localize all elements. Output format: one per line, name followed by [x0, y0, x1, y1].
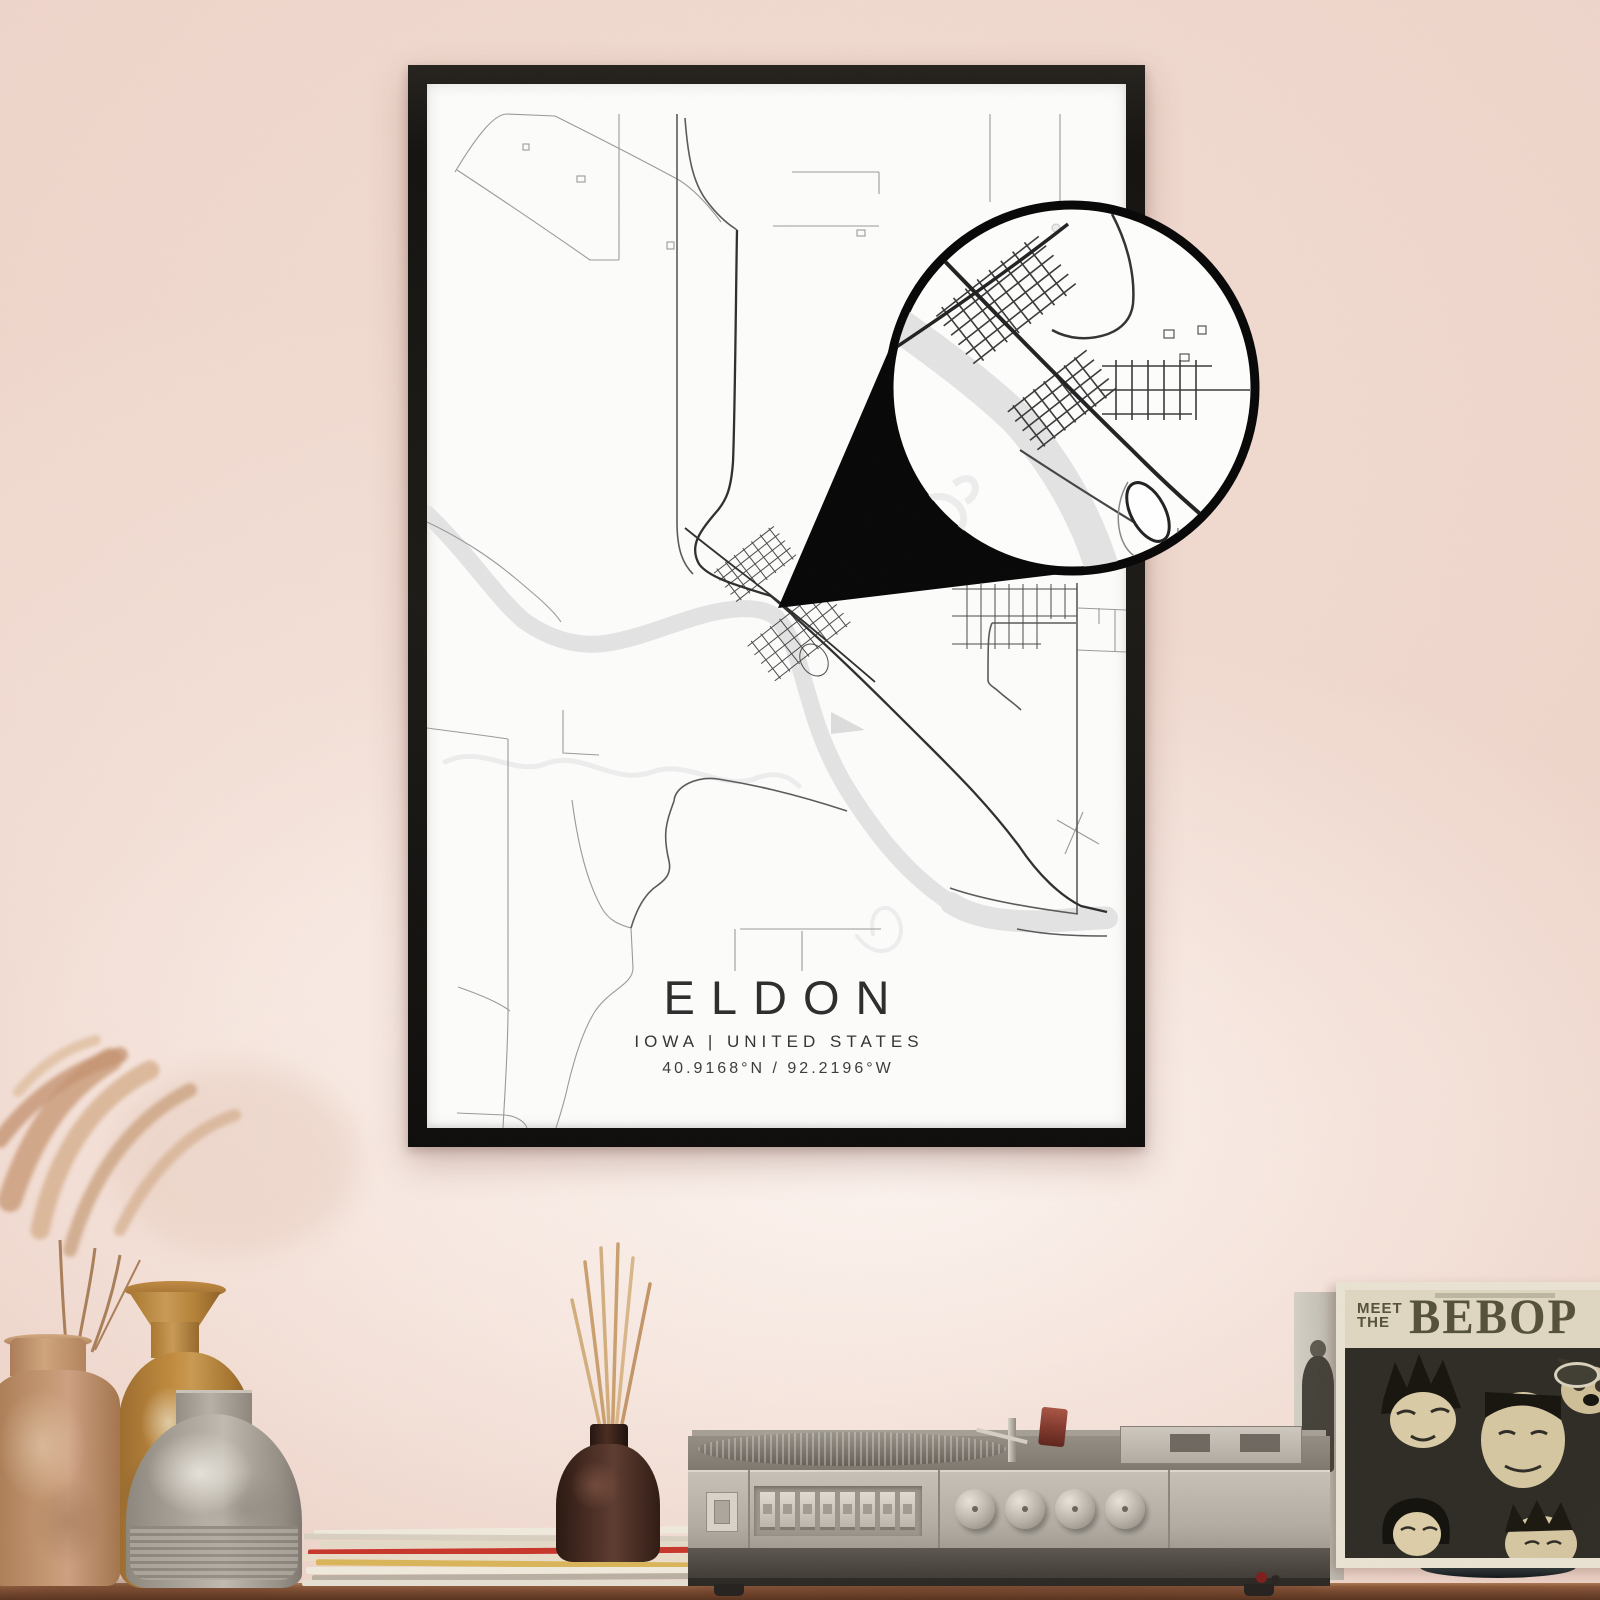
- room-scene: ELDON IOWA | UNITED STATES 40.9168°N / 9…: [0, 0, 1600, 1600]
- cassette-window: [1240, 1434, 1280, 1452]
- record-player-foot: [1244, 1584, 1274, 1596]
- record-player-base: [688, 1548, 1330, 1580]
- grey-vase-ribbed-band: [130, 1526, 298, 1580]
- magazine-stack: [300, 1524, 750, 1586]
- poster-subtitle: IOWA | UNITED STATES: [427, 1032, 1126, 1052]
- poster-title: ELDON: [427, 970, 1126, 1025]
- tuning-knob: [1005, 1489, 1045, 1529]
- cassette-window: [1170, 1434, 1210, 1452]
- record-player-foot: [714, 1584, 744, 1596]
- poster-frame: ELDON IOWA | UNITED STATES 40.9168°N / 9…: [408, 65, 1145, 1147]
- map-poster-paper: ELDON IOWA | UNITED STATES 40.9168°N / 9…: [427, 84, 1126, 1128]
- cable-plug: [1271, 1575, 1280, 1584]
- volume-knob: [955, 1489, 995, 1529]
- turntable-platter: [698, 1432, 1006, 1466]
- treble-knob: [1105, 1489, 1145, 1529]
- preset-button: [900, 1492, 915, 1530]
- album-title-main: BEBOP: [1409, 1289, 1578, 1346]
- album-title-small: MEET THE: [1357, 1302, 1403, 1330]
- preset-button: [800, 1492, 815, 1530]
- map-roads-main: [685, 230, 1107, 912]
- magazine: [302, 1580, 744, 1586]
- panel-divider: [1168, 1470, 1170, 1548]
- cable-plug: [1256, 1572, 1267, 1583]
- panel-divider: [748, 1470, 750, 1548]
- bebop-album-cover: MEET THE BEBOP: [1336, 1282, 1600, 1568]
- album-word-the: THE: [1357, 1314, 1390, 1331]
- preset-button: [860, 1492, 875, 1530]
- tonearm-cartridge: [1038, 1407, 1068, 1448]
- bass-knob: [1055, 1489, 1095, 1529]
- power-button: [706, 1492, 738, 1532]
- album-artwork: [1345, 1348, 1600, 1558]
- tan-vase-body: [0, 1370, 120, 1586]
- preset-button: [820, 1492, 835, 1530]
- record-player: [688, 1404, 1330, 1592]
- album-header: MEET THE BEBOP: [1345, 1290, 1600, 1348]
- preset-button: [760, 1492, 775, 1530]
- poster-coordinates: 40.9168°N / 92.2196°W: [427, 1060, 1126, 1078]
- record-player-bottom-lip: [688, 1578, 1330, 1586]
- panel-divider: [938, 1470, 940, 1548]
- diffuser-bottle: [556, 1444, 660, 1562]
- preset-button: [880, 1492, 895, 1530]
- preset-button: [840, 1492, 855, 1530]
- preset-button: [780, 1492, 795, 1530]
- record-label-logo: [1554, 1362, 1600, 1388]
